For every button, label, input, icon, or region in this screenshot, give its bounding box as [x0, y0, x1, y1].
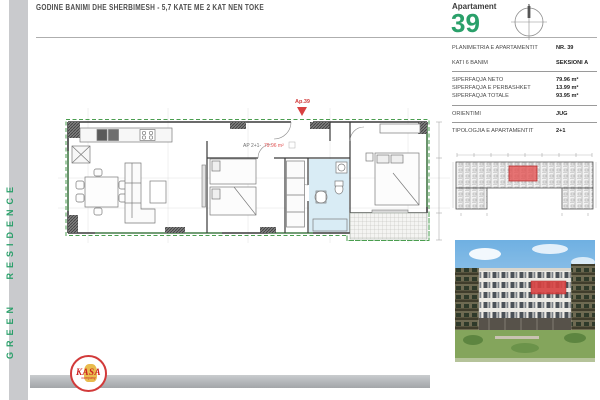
area-label: SIPERFAQJA TOTALE — [452, 93, 509, 99]
area-value: 79.96 m² — [556, 77, 578, 83]
typology-value: 2+1 — [556, 128, 566, 134]
svg-text:AP 2+1-: AP 2+1- — [243, 143, 261, 149]
photo-highlighted-unit — [531, 281, 566, 294]
unit-area-label: AP 2+1- 79.96 m² — [243, 142, 295, 149]
dimension-lines — [436, 122, 442, 240]
keyplan-highlighted-unit — [509, 166, 537, 181]
keyplan-right-wing — [562, 188, 593, 209]
area-value: 93.95 m² — [556, 93, 578, 99]
keyplan-left-wing — [456, 188, 487, 209]
orientation-value: JUG — [556, 111, 568, 117]
row-value: NR. 39 — [556, 45, 573, 51]
typology-label: TIPOLOGJIA E APARTAMENTIT — [452, 128, 533, 134]
bedroom2-furniture — [366, 124, 420, 205]
orientation-label: ORIENTIMI — [452, 111, 481, 117]
apartment-number: 39 — [451, 8, 480, 39]
kitchen-counter — [80, 128, 172, 142]
row-label: PLANIMETRIA E APARTAMENTIT — [452, 45, 538, 51]
terrace — [347, 213, 429, 241]
entry-arrow-icon — [297, 107, 307, 116]
floor-plan: Ap.39 AP 2+1- 79.96 m² — [58, 93, 450, 252]
row-value: SEKSIONI A — [556, 60, 588, 66]
brand-vertical-text: GREEN RESIDENCE — [0, 168, 19, 373]
plan-sheet: GREEN RESIDENCE GODINE BANIMI DHE SHERBI… — [0, 0, 600, 400]
info-panel: PLANIMETRIA E APARTAMENTIT NR. 39 KATI 6… — [452, 41, 597, 146]
kitchen-sink-unit — [72, 146, 90, 163]
coffee-table — [150, 181, 166, 203]
photo-right-building — [571, 264, 595, 338]
divider — [452, 122, 597, 123]
area-label: SIPERFAQJA NETO — [452, 77, 503, 83]
row-label: KATI 6 BANIM — [452, 60, 488, 66]
bedroom1-beds — [210, 159, 256, 215]
area-value: 13.99 m² — [556, 85, 578, 91]
divider — [452, 105, 597, 106]
hall-closet — [287, 161, 305, 227]
entry-label: Ap.39 — [295, 99, 310, 105]
company-logo: KASA company — [70, 355, 107, 392]
entry-marker: Ap.39 — [295, 99, 310, 116]
svg-text:79.96 m²: 79.96 m² — [264, 143, 284, 149]
key-plan — [451, 150, 598, 225]
divider — [452, 71, 597, 72]
brand-name: GREEN RESIDENCE — [5, 182, 15, 359]
building-photo — [455, 240, 595, 367]
tv-unit — [202, 165, 206, 207]
sheet-title: GODINE BANIMI DHE SHERBIMESH - 5,7 KATE … — [36, 3, 456, 12]
compass-icon: N — [508, 2, 550, 45]
logo-subtitle: company — [81, 376, 95, 380]
photo-left-building — [455, 268, 479, 338]
area-label: SIPERFAQJA E PERBASHKET — [452, 85, 531, 91]
